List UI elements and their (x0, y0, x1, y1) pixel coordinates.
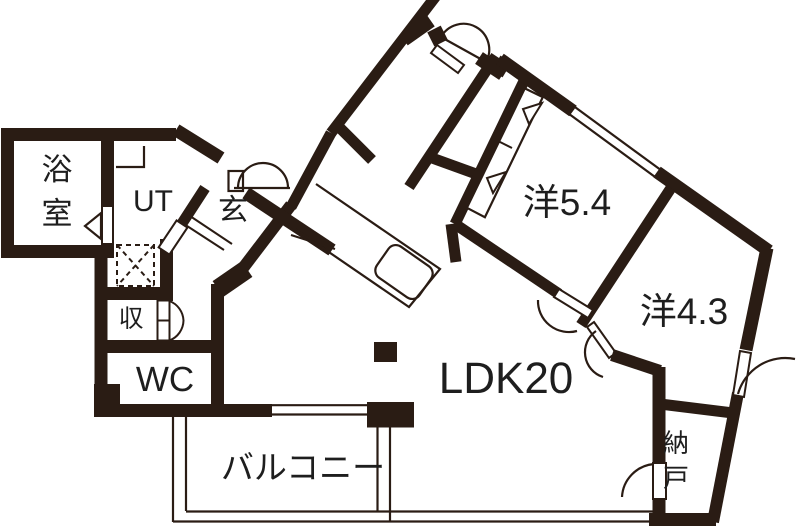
svg-text:浴: 浴 (42, 152, 73, 187)
svg-text:洋4.3: 洋4.3 (640, 291, 728, 332)
svg-text:UT: UT (133, 185, 173, 218)
svg-text:WC: WC (136, 360, 194, 399)
svg-text:洋5.4: 洋5.4 (523, 182, 611, 223)
svg-text:戸: 戸 (663, 463, 689, 493)
svg-text:収: 収 (118, 305, 143, 333)
svg-text:LDK20: LDK20 (439, 354, 574, 403)
svg-text:室: 室 (42, 196, 73, 231)
svg-text:納: 納 (663, 428, 689, 458)
svg-text:玄: 玄 (218, 194, 248, 227)
svg-text:バルコニー: バルコニー (221, 449, 385, 486)
